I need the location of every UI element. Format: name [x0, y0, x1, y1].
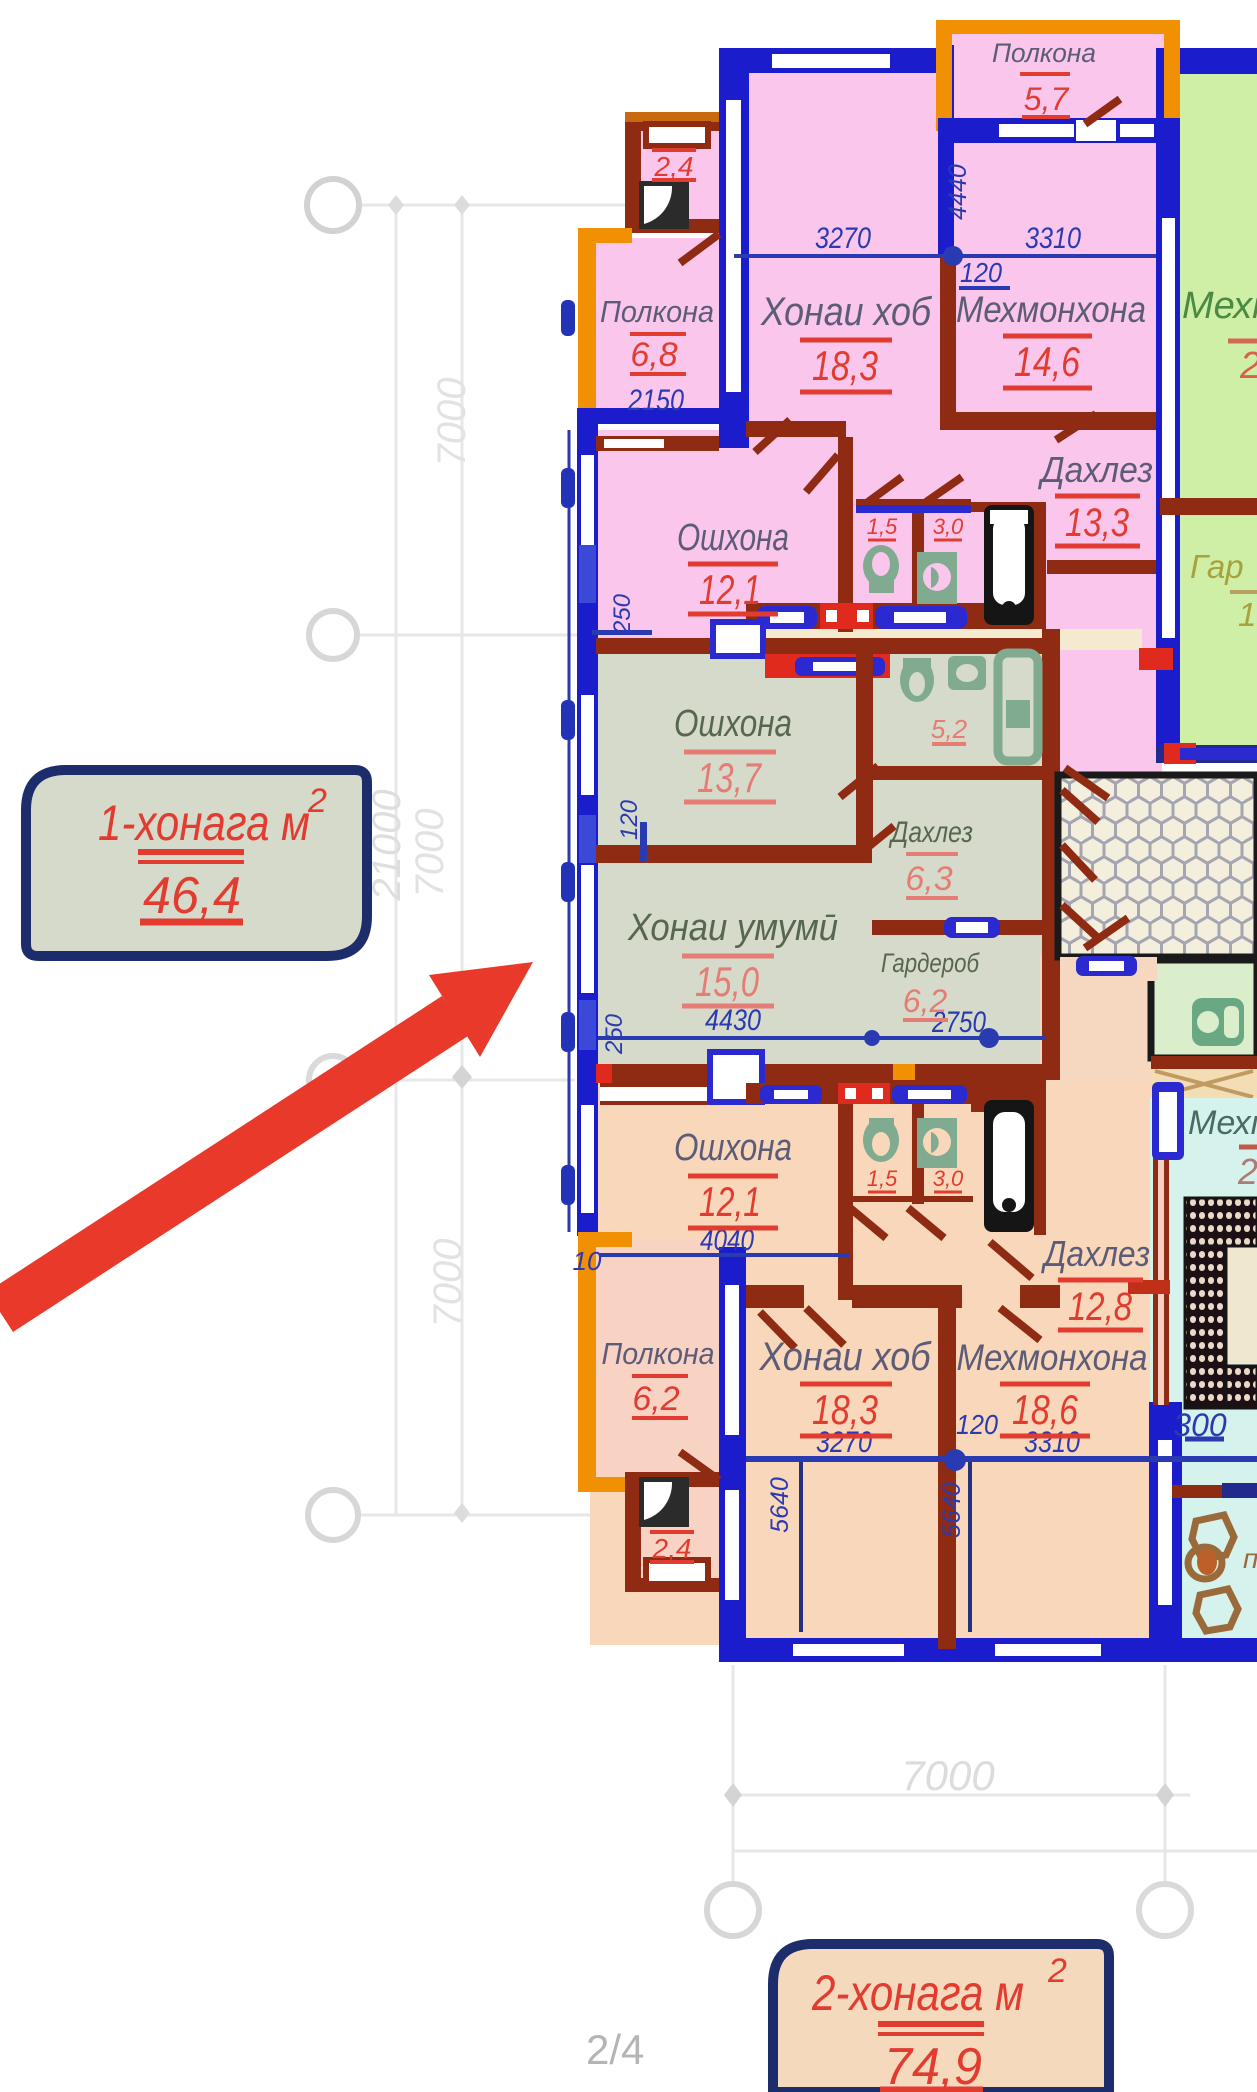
- svg-text:Полкона: Полкона: [992, 38, 1096, 68]
- svg-text:7000: 7000: [430, 378, 474, 467]
- svg-text:250: 250: [601, 1013, 628, 1055]
- svg-text:Ошхона: Ошхона: [677, 517, 789, 559]
- svg-text:Дахлез: Дахлез: [1037, 449, 1153, 490]
- svg-text:12,1: 12,1: [699, 1178, 761, 1225]
- svg-text:13,3: 13,3: [1065, 501, 1129, 545]
- svg-text:п: п: [1243, 1543, 1257, 1574]
- svg-text:6,8: 6,8: [630, 336, 677, 374]
- svg-text:Ошхона: Ошхона: [674, 1127, 792, 1169]
- svg-text:3,0: 3,0: [933, 1166, 964, 1191]
- svg-text:Мехм: Мехм: [1182, 285, 1257, 327]
- svg-text:6,3: 6,3: [905, 860, 952, 898]
- svg-text:300: 300: [1173, 1407, 1227, 1443]
- svg-text:Полкона: Полкона: [600, 294, 714, 329]
- svg-text:6,2: 6,2: [632, 1380, 679, 1418]
- svg-text:Мехмонхона: Мехмонхона: [957, 1337, 1148, 1378]
- svg-text:18,3: 18,3: [812, 1386, 878, 1433]
- svg-text:15,0: 15,0: [695, 958, 759, 1005]
- svg-text:7000: 7000: [408, 809, 452, 898]
- svg-text:1-хонага м: 1-хонага м: [98, 795, 310, 851]
- svg-text:Полкона: Полкона: [602, 1336, 715, 1371]
- svg-text:Хонаи хоб: Хонаи хоб: [760, 290, 932, 334]
- svg-text:120: 120: [616, 799, 643, 840]
- svg-text:Дахлез: Дахлез: [1040, 1233, 1150, 1274]
- svg-text:120: 120: [960, 257, 1002, 288]
- svg-text:2,4: 2,4: [652, 1533, 692, 1564]
- svg-text:3270: 3270: [815, 222, 871, 255]
- svg-text:Ошхона: Ошхона: [674, 703, 792, 745]
- svg-text:Гардероб: Гардероб: [881, 948, 980, 978]
- svg-text:Гар: Гар: [1190, 548, 1244, 585]
- svg-text:5640: 5640: [938, 1482, 966, 1538]
- svg-text:1,5: 1,5: [867, 1166, 898, 1191]
- svg-text:2-хонага м: 2-хонага м: [811, 1965, 1024, 2021]
- svg-text:2: 2: [1047, 1952, 1067, 1990]
- svg-text:5640: 5640: [766, 1477, 794, 1533]
- svg-text:Дахлез: Дахлез: [889, 816, 973, 849]
- svg-text:3,0: 3,0: [933, 514, 964, 539]
- svg-text:2: 2: [307, 782, 327, 820]
- svg-text:Хонаи умумӣ: Хонаи умумӣ: [627, 907, 838, 949]
- svg-text:18,3: 18,3: [812, 342, 878, 389]
- svg-text:120: 120: [956, 1409, 998, 1440]
- svg-text:1: 1: [1238, 596, 1256, 633]
- svg-text:1,5: 1,5: [867, 514, 898, 539]
- svg-text:7000: 7000: [426, 1239, 470, 1328]
- svg-text:2: 2: [1239, 345, 1257, 387]
- svg-text:4440: 4440: [944, 164, 972, 220]
- svg-text:6,2: 6,2: [903, 983, 948, 1019]
- svg-text:5,7: 5,7: [1024, 81, 1070, 117]
- svg-text:5,2: 5,2: [931, 714, 968, 744]
- svg-text:10: 10: [573, 1246, 602, 1276]
- svg-text:46,4: 46,4: [143, 867, 241, 925]
- svg-text:3310: 3310: [1025, 222, 1081, 255]
- svg-text:18,6: 18,6: [1012, 1386, 1079, 1433]
- svg-text:74,9: 74,9: [884, 2038, 982, 2092]
- svg-text:4430: 4430: [705, 1004, 761, 1037]
- svg-text:14,6: 14,6: [1014, 338, 1081, 385]
- svg-text:2/4: 2/4: [586, 2026, 644, 2073]
- svg-text:12,8: 12,8: [1068, 1285, 1133, 1329]
- svg-text:Хонаи хоб: Хонаи хоб: [759, 1335, 932, 1379]
- svg-text:2150: 2150: [627, 384, 684, 417]
- svg-text:2: 2: [1237, 1151, 1257, 1192]
- svg-text:250: 250: [609, 593, 636, 635]
- svg-text:13,7: 13,7: [697, 754, 762, 801]
- svg-text:2,4: 2,4: [654, 151, 694, 182]
- svg-text:12,1: 12,1: [699, 566, 761, 613]
- svg-text:Мехм: Мехм: [1188, 1104, 1257, 1142]
- svg-text:7000: 7000: [901, 1752, 995, 1799]
- svg-text:Мехмонхона: Мехмонхона: [956, 289, 1146, 330]
